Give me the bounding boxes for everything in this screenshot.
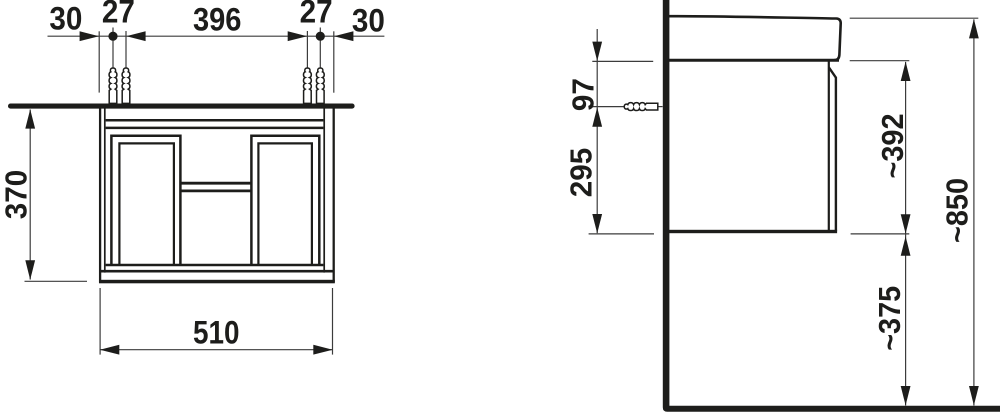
svg-text:~375: ~375 [872, 286, 907, 351]
svg-text:97: 97 [565, 78, 600, 111]
svg-text:370: 370 [0, 170, 33, 220]
svg-text:~850: ~850 [940, 178, 975, 243]
svg-text:30: 30 [352, 3, 385, 39]
svg-text:396: 396 [193, 2, 242, 38]
svg-text:30: 30 [49, 1, 82, 37]
svg-text:~392: ~392 [875, 114, 910, 179]
svg-text:27: 27 [102, 0, 135, 30]
svg-text:27: 27 [300, 0, 333, 30]
svg-text:295: 295 [564, 148, 599, 198]
svg-text:510: 510 [193, 315, 240, 351]
